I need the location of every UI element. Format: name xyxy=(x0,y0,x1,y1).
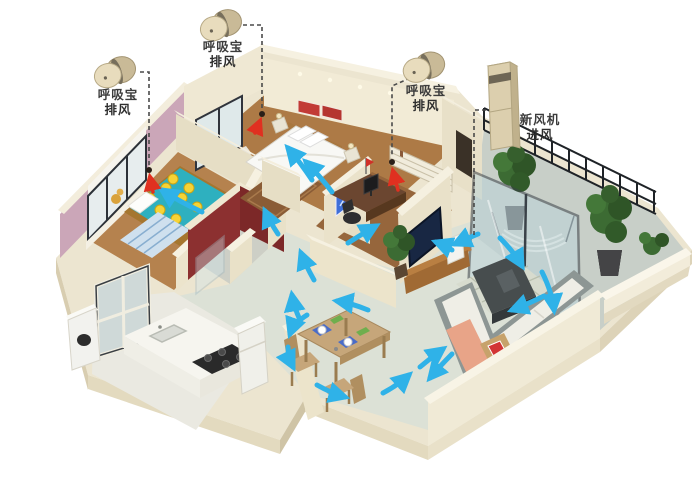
label-breather-left-line2: 排风 xyxy=(89,103,147,118)
label-breather-top-line2: 排风 xyxy=(194,55,252,70)
label-breather-right-line2: 排风 xyxy=(397,99,455,114)
breather-unit-icon-top xyxy=(196,6,245,45)
breather-unit-icon-left xyxy=(90,53,139,92)
label-fresh-air-line1: 新风机 xyxy=(511,113,569,128)
ventilation-floorplan-figure: 呼吸宝 排风 呼吸宝 排风 呼吸宝 排风 新风机 进风 xyxy=(0,0,700,496)
vent-dot-child xyxy=(146,167,152,173)
label-breather-right: 呼吸宝 排风 xyxy=(397,84,455,114)
washing-machine xyxy=(66,304,100,370)
label-fresh-air-line2: 进风 xyxy=(511,128,569,143)
label-breather-top-line1: 呼吸宝 xyxy=(194,40,252,55)
floorplan-3d-illustration xyxy=(0,0,700,496)
vent-dot-master xyxy=(259,111,265,117)
label-breather-right-line1: 呼吸宝 xyxy=(397,84,455,99)
label-breather-left: 呼吸宝 排风 xyxy=(89,88,147,118)
label-breather-top: 呼吸宝 排风 xyxy=(194,40,252,70)
vent-dot-study xyxy=(389,159,395,165)
label-fresh-air-unit: 新风机 进风 xyxy=(511,113,569,143)
label-breather-left-line1: 呼吸宝 xyxy=(89,88,147,103)
